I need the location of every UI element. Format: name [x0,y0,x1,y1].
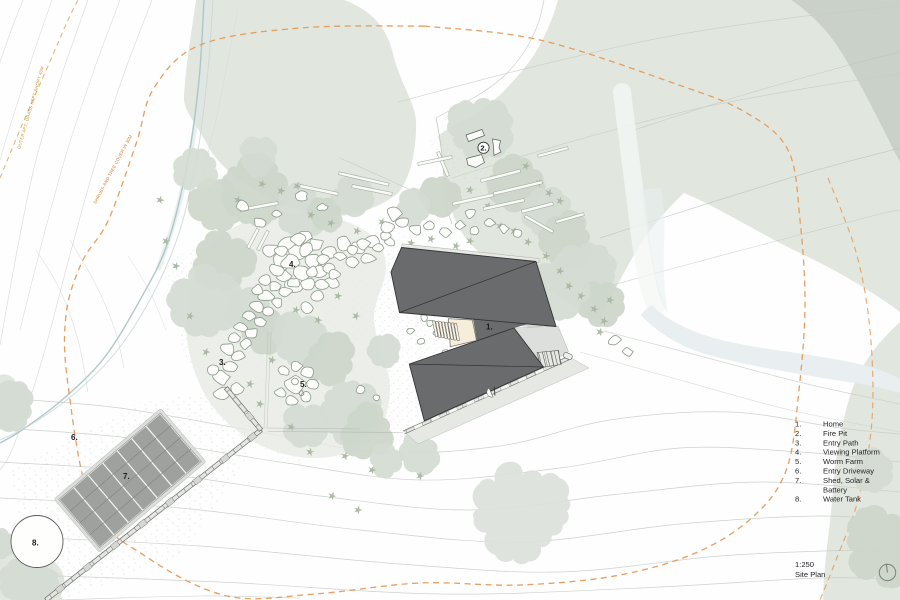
svg-text:1:250: 1:250 [795,560,814,569]
svg-text:Fire Pit: Fire Pit [823,429,848,438]
svg-text:6.: 6. [71,433,78,442]
svg-text:2.: 2. [480,144,486,153]
svg-text:Worm Farm: Worm Farm [823,457,863,466]
svg-text:1.: 1. [486,323,493,332]
svg-text:4.: 4. [289,260,296,269]
svg-text:2.: 2. [795,429,801,438]
svg-text:Home: Home [823,420,843,429]
svg-text:Entry Driveway: Entry Driveway [823,467,874,476]
svg-text:5.: 5. [795,457,801,466]
svg-text:4.: 4. [795,448,801,457]
svg-text:8.: 8. [795,495,801,504]
svg-text:3.: 3. [795,438,801,447]
svg-text:Shed, Solar &: Shed, Solar & [823,476,870,485]
svg-text:Site Plan: Site Plan [795,570,825,579]
svg-text:7.: 7. [123,472,130,481]
svg-text:5.: 5. [300,380,307,389]
svg-text:Water Tank: Water Tank [823,495,861,504]
svg-text:8.: 8. [32,539,39,548]
svg-text:Viewing Platform: Viewing Platform [823,448,880,457]
svg-text:Entry Path: Entry Path [823,438,858,447]
svg-text:6.: 6. [795,467,801,476]
svg-text:1.: 1. [795,420,801,429]
svg-text:7.: 7. [795,476,801,485]
svg-text:Battery: Battery [823,485,847,494]
svg-text:3.: 3. [219,358,226,367]
